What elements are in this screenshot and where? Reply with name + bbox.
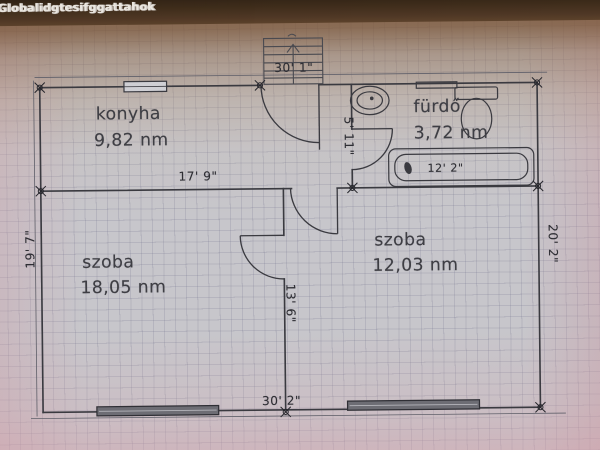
wall-mid-horizontal-left [41,189,292,192]
dim-bathtub-width: 12' 2" [423,161,468,175]
bathroom-area: 3,72 nm [414,123,489,144]
wall-left [40,88,43,413]
room2-window-icon [348,400,480,411]
doors [239,84,394,279]
kitchen-window-icon [124,81,167,92]
room1-area: 18,05 nm [80,277,166,298]
bathtub-faucet-icon [403,161,413,175]
dim-bath-wall-height: 5' 11" [341,113,356,160]
stairs-top-mark [288,34,296,36]
dim-bottom-width: 30' 2" [251,393,312,408]
kitchen-area: 9,82 nm [94,130,169,151]
dim-kitchen-width: 17' 9" [167,169,228,184]
sink-icon [350,86,389,115]
dim-divider-height: 13' 6" [283,280,298,327]
overlay-title-text: Globalidgtesifggattahok [0,0,155,15]
floorplan-tilted-sheet: konyha 9,82 nm fürdő 3,72 nm szoba 18,05… [0,0,600,450]
bathroom-door-icon [352,129,393,170]
room2-door-icon [290,188,337,234]
dim-right-height: 20' 2" [546,220,561,267]
bathroom-label: fürdő [413,96,461,117]
dim-left-height: 19' 7" [23,226,38,273]
wall-right [537,82,540,407]
room1-label: szoba [82,252,134,273]
entrance-door-icon [261,85,320,151]
room2-label: szoba [374,230,426,251]
staircase-icon [263,34,322,84]
room2-area: 12,03 nm [372,255,458,276]
room1-door-icon [240,235,284,279]
room1-window-icon [97,406,219,416]
dim-top-width: 30' 1" [266,60,322,75]
floorplan-photo: konyha 9,82 nm fürdő 3,72 nm szoba 18,05… [0,0,600,450]
kitchen-label: konyha [96,104,161,125]
